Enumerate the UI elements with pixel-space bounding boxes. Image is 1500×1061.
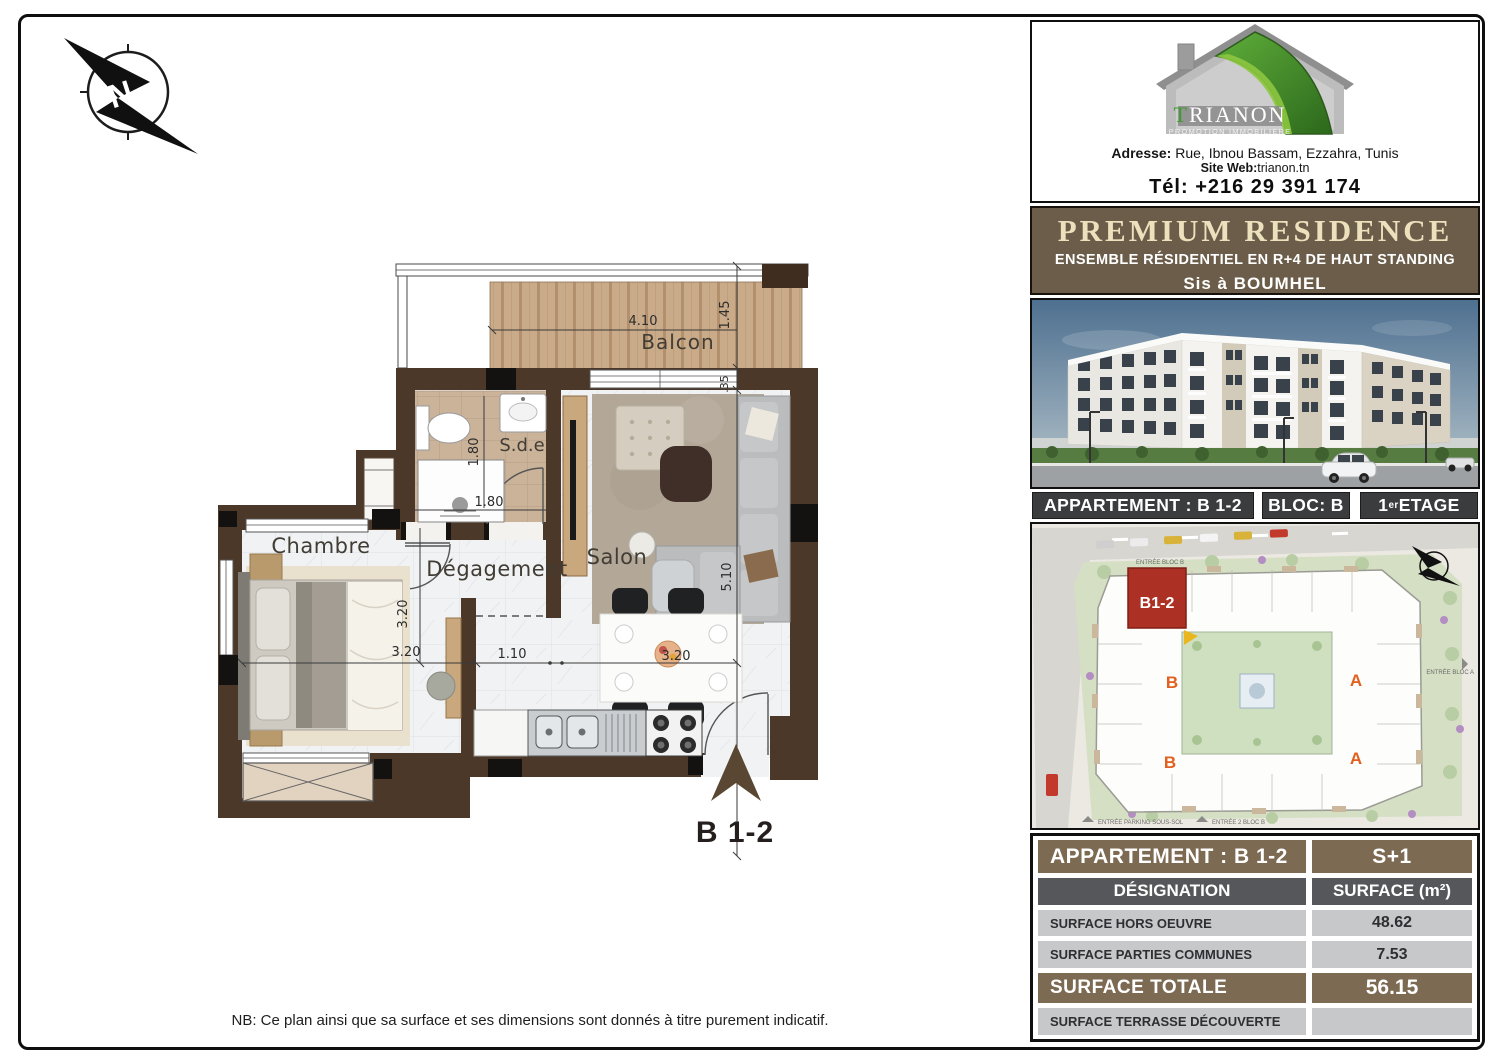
apartment-bar: APPARTEMENT : B 1-2 BLOC: B 1er ETAGE (1030, 492, 1480, 519)
svg-text:ENTRÉE BLOC B: ENTRÉE BLOC B (1136, 559, 1184, 566)
row-label: SURFACE PARTIES COMMUNES (1038, 941, 1306, 968)
page: N (0, 0, 1500, 1061)
salon-label: Salon (587, 545, 648, 569)
project-title: PREMIUM RESIDENCE (1032, 213, 1478, 249)
building-render (1030, 298, 1480, 489)
col-designation: DÉSIGNATION (1038, 878, 1306, 905)
total-value: 56.15 (1312, 973, 1472, 1004)
svg-text:4.10: 4.10 (629, 314, 658, 329)
site-plan: B1-2 B B A A ENTRÉE BLOC B ENTRÉE BLOC A… (1030, 522, 1480, 830)
table-row: SURFACE HORS OEUVRE 48.62 (1038, 910, 1472, 937)
svg-text:B: B (1166, 673, 1178, 692)
svg-text:B: B (1164, 753, 1176, 772)
table-row: SURFACE PARTIES COMMUNES 7.53 (1038, 941, 1472, 968)
site-plan-image: B1-2 B B A A ENTRÉE BLOC B ENTRÉE BLOC A… (1032, 524, 1478, 828)
balcony-sliding-door (590, 370, 737, 388)
planter-hatch (243, 763, 373, 801)
svg-text:1.10: 1.10 (498, 647, 527, 662)
balcony (396, 264, 808, 372)
kitchen (474, 710, 702, 756)
company-website[interactable]: Site Web:trianon.tn (1032, 161, 1478, 176)
svg-text:A: A (1350, 671, 1362, 690)
total-label: SURFACE TOTALE (1038, 973, 1306, 1004)
col-surface: SURFACE (m²) (1312, 878, 1472, 905)
highlighted-unit-label: B1-2 (1140, 595, 1175, 612)
bedroom-window-top (246, 519, 368, 532)
svg-text:ENTRÉE 2 BLOC B: ENTRÉE 2 BLOC B (1212, 819, 1265, 826)
bed-headboard (238, 572, 250, 740)
surface-table: APPARTEMENT : B 1-2 S+1 DÉSIGNATION SURF… (1030, 833, 1480, 1042)
row-value: 7.53 (1312, 941, 1472, 968)
bedroom-label: Chambre (271, 534, 370, 558)
table-apartment-title: APPARTEMENT : B 1-2 (1038, 840, 1306, 873)
table-total-row: SURFACE TOTALE 56.15 (1038, 973, 1472, 1004)
svg-text:5.10: 5.10 (720, 563, 735, 592)
svg-text:1.45: 1.45 (718, 301, 733, 330)
bedroom-window-left (220, 560, 233, 655)
svg-text:.35: .35 (718, 375, 731, 393)
pillow (256, 588, 290, 650)
company-logo-icon: TRIANON PROMOTION IMMOBILIERE (1150, 22, 1360, 140)
building-render-image (1032, 300, 1478, 487)
wardrobe (446, 618, 461, 718)
unit-label: B 1-2 (696, 816, 774, 849)
project-location: Sis à BOUMHEL (1032, 274, 1478, 294)
bloc-badge: BLOC: B (1262, 492, 1350, 519)
table-type-badge: S+1 (1312, 840, 1472, 873)
table-row: SURFACE TERRASSE DÉCOUVERTE (1038, 1008, 1472, 1035)
pillow (256, 656, 290, 720)
kitchen-cabinet (474, 710, 528, 756)
company-tagline: PROMOTION IMMOBILIERE (1169, 127, 1292, 136)
floor-badge: 1er ETAGE (1360, 492, 1478, 519)
row-value: 48.62 (1312, 910, 1472, 937)
hall-label: Dégagement (426, 557, 567, 581)
toilet (428, 413, 470, 443)
svg-text:ENTRÉE PARKING SOUS-SOL: ENTRÉE PARKING SOUS-SOL (1098, 819, 1184, 826)
tv (570, 420, 576, 540)
table-title-row: APPARTEMENT : B 1-2 S+1 (1038, 840, 1472, 873)
coffee-table (660, 446, 712, 502)
company-header: TRIANON PROMOTION IMMOBILIERE Adresse: R… (1030, 20, 1480, 203)
bed-runner (312, 582, 346, 728)
plant (427, 672, 455, 700)
floor-plan: N (0, 0, 1030, 1061)
project-subtitle: ENSEMBLE RÉSIDENTIEL EN R+4 DE HAUT STAN… (1032, 252, 1478, 268)
plan-disclaimer-note: NB: Ce plan ainsi que sa surface et ses … (30, 1012, 1030, 1029)
company-phone: Tél: +216 29 391 174 (1032, 176, 1478, 199)
row-label: SURFACE TERRASSE DÉCOUVERTE (1038, 1008, 1306, 1035)
svg-text:TRIANON: TRIANON (1173, 102, 1286, 127)
dining-chair (668, 588, 704, 615)
row-label: SURFACE HORS OEUVRE (1038, 910, 1306, 937)
car-icon (1046, 774, 1058, 796)
dining-chair (612, 588, 648, 615)
svg-text:1.80: 1.80 (467, 438, 482, 467)
svg-text:A: A (1350, 749, 1362, 768)
apartment-id-badge: APPARTEMENT : B 1-2 (1032, 492, 1254, 519)
bathroom-label: S.d.e (499, 435, 544, 456)
svg-text:3.20: 3.20 (392, 645, 421, 660)
table-header-row: DÉSIGNATION SURFACE (m²) (1038, 878, 1472, 905)
company-address: Adresse: Rue, Ibnou Bassam, Ezzahra, Tun… (1032, 145, 1478, 161)
project-banner: PREMIUM RESIDENCE ENSEMBLE RÉSIDENTIEL E… (1030, 206, 1480, 295)
svg-text:ENTRÉE BLOC A: ENTRÉE BLOC A (1426, 669, 1474, 676)
north-compass-icon: N (64, 38, 198, 154)
row-value (1312, 1008, 1472, 1035)
balcony-label: Balcon (641, 330, 714, 354)
svg-text:3.20: 3.20 (396, 600, 411, 629)
svg-text:3.20: 3.20 (662, 649, 691, 664)
svg-text:1.80: 1.80 (475, 495, 504, 510)
